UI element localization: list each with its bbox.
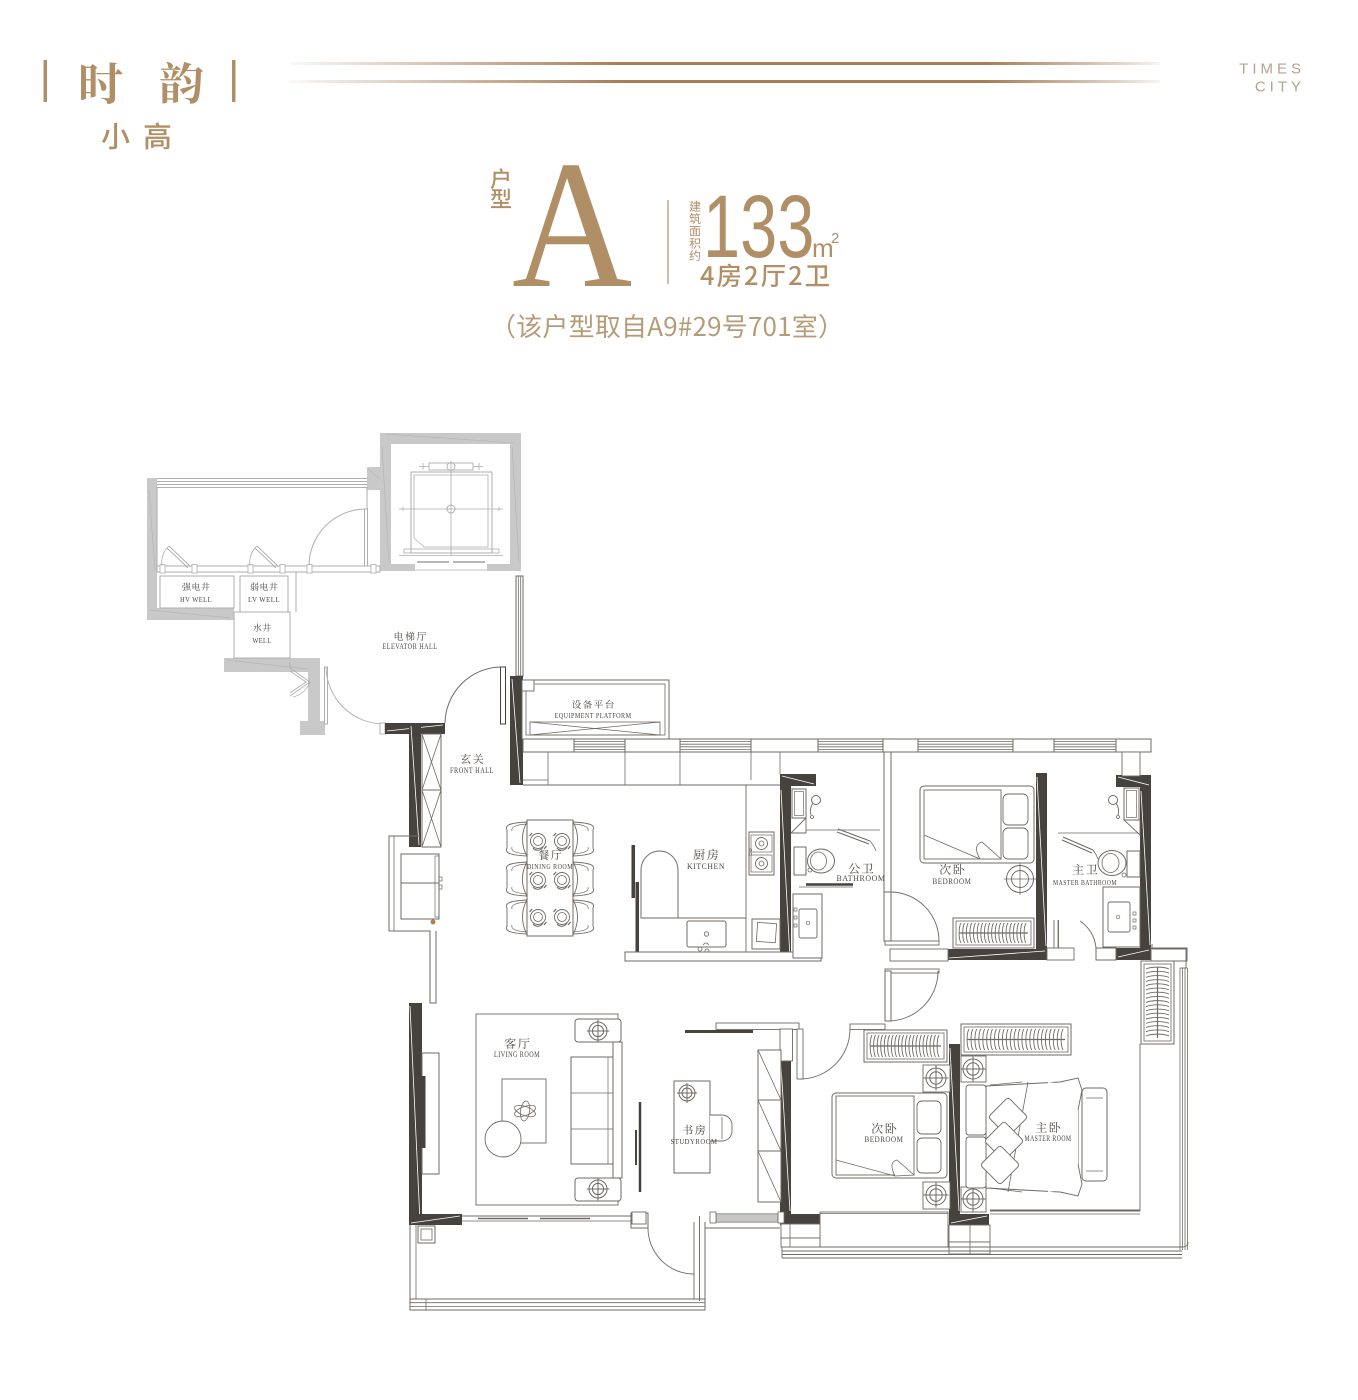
svg-text:MASTER ROOM: MASTER ROOM — [1025, 1134, 1072, 1143]
svg-text:TIMES: TIMES — [1239, 61, 1305, 78]
svg-text:KITCHEN: KITCHEN — [687, 862, 725, 871]
svg-text:EQUIPMENT PLATFORM: EQUIPMENT PLATFORM — [555, 711, 632, 720]
svg-text:BATHROOM: BATHROOM — [837, 874, 886, 883]
svg-text:BEDROOM: BEDROOM — [933, 877, 972, 886]
svg-text:WELL: WELL — [253, 636, 272, 645]
svg-text:FRONT HALL: FRONT HALL — [450, 766, 494, 775]
svg-text:BEDROOM: BEDROOM — [865, 1135, 904, 1144]
svg-text:A: A — [512, 123, 632, 326]
svg-text:LIVING ROOM: LIVING ROOM — [494, 1050, 540, 1059]
svg-text:CITY: CITY — [1255, 79, 1305, 96]
svg-text:STUDYROOM: STUDYROOM — [671, 1137, 718, 1146]
svg-text:DINING ROOM: DINING ROOM — [527, 862, 573, 871]
svg-text:HV WELL: HV WELL — [180, 595, 212, 604]
svg-text:133: 133 — [703, 177, 814, 277]
svg-text:2: 2 — [831, 230, 839, 247]
svg-text:LV WELL: LV WELL — [248, 595, 280, 604]
svg-text:ELEVATOR HALL: ELEVATOR HALL — [383, 642, 438, 651]
svg-text:MASTER BATHROOM: MASTER BATHROOM — [1053, 878, 1117, 887]
